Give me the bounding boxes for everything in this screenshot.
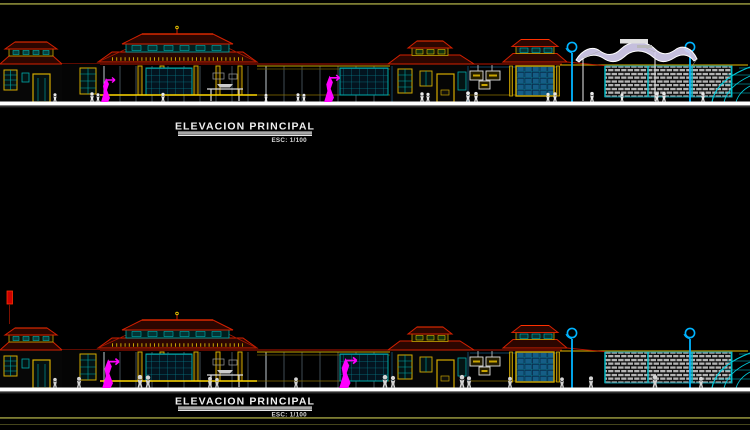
border-line-top (0, 3, 750, 5)
title-block: ELEVACION PRINCIPAL ESC: 1/100 (175, 121, 315, 145)
title-underline-bar (178, 407, 312, 412)
cad-sheet: ELEVACION PRINCIPAL ESC: 1/100 (0, 0, 750, 430)
title-block: ELEVACION PRINCIPAL ESC: 1/100 (175, 396, 315, 419)
scale-label: ESC: 1/100 (271, 412, 307, 419)
border-line-bottom-2 (0, 424, 750, 425)
top-elevation-drawing: ELEVACION PRINCIPAL ESC: 1/100 (0, 26, 750, 144)
elevation-title: ELEVACION PRINCIPAL (175, 396, 315, 408)
tree (324, 75, 339, 102)
scale-label: ESC: 1/100 (271, 137, 307, 144)
elevation-title: ELEVACION PRINCIPAL (175, 121, 315, 133)
elevation-sheet-canvas: ELEVACION PRINCIPAL ESC: 1/100 (0, 0, 750, 430)
border-line-bottom (0, 417, 750, 419)
roof-sign (620, 39, 648, 44)
title-underline-bar (178, 132, 312, 137)
red-flag-pole (7, 291, 13, 324)
bottom-elevation-drawing: ELEVACION PRINCIPAL ESC: 1/100 (0, 291, 750, 419)
tree (101, 78, 115, 103)
tree (102, 359, 119, 388)
